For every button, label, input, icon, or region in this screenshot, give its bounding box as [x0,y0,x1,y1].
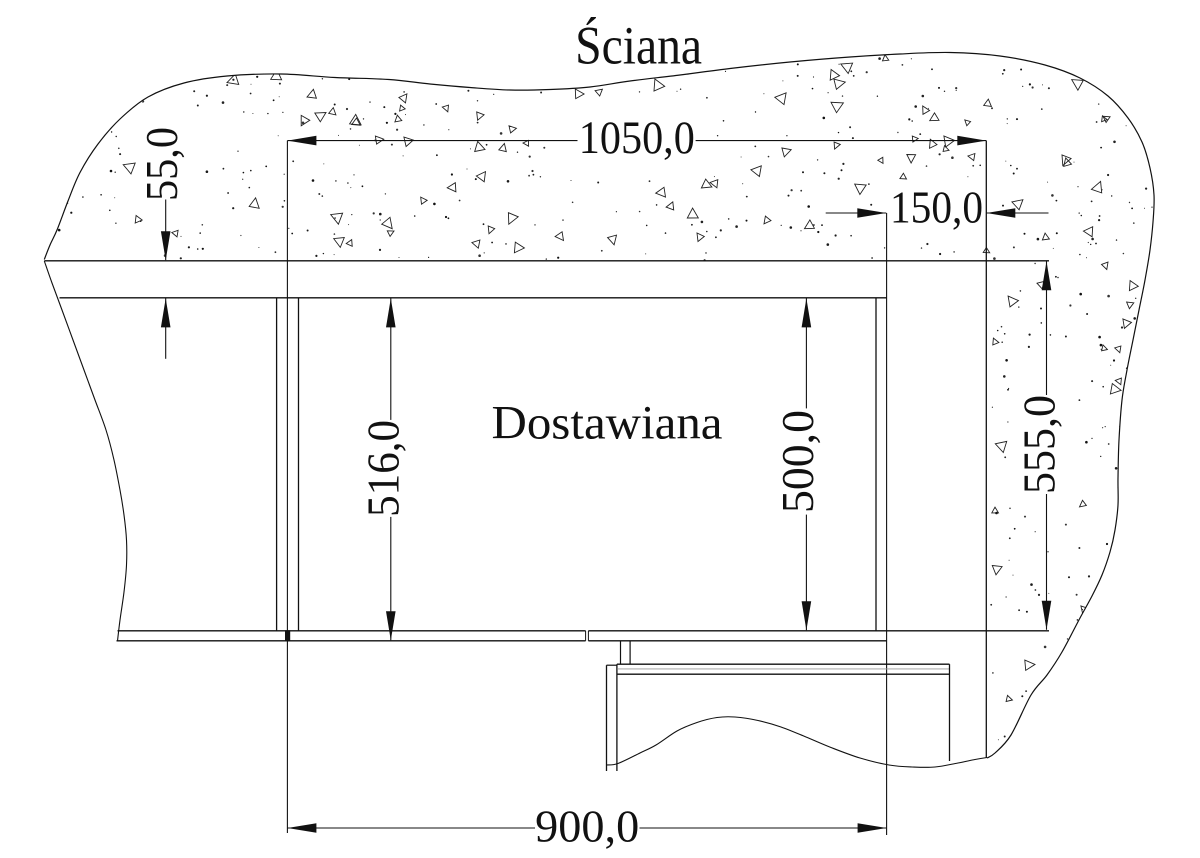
svg-text:1050,0: 1050,0 [579,112,695,164]
svg-text:500,0: 500,0 [772,410,823,513]
svg-text:555,0: 555,0 [1014,395,1065,494]
svg-text:900,0: 900,0 [535,801,639,852]
svg-text:Dostawiana: Dostawiana [492,397,723,450]
svg-text:150,0: 150,0 [890,182,983,233]
svg-text:55,0: 55,0 [136,127,187,201]
svg-text:Ściana: Ściana [575,16,702,76]
svg-text:516,0: 516,0 [358,420,409,517]
